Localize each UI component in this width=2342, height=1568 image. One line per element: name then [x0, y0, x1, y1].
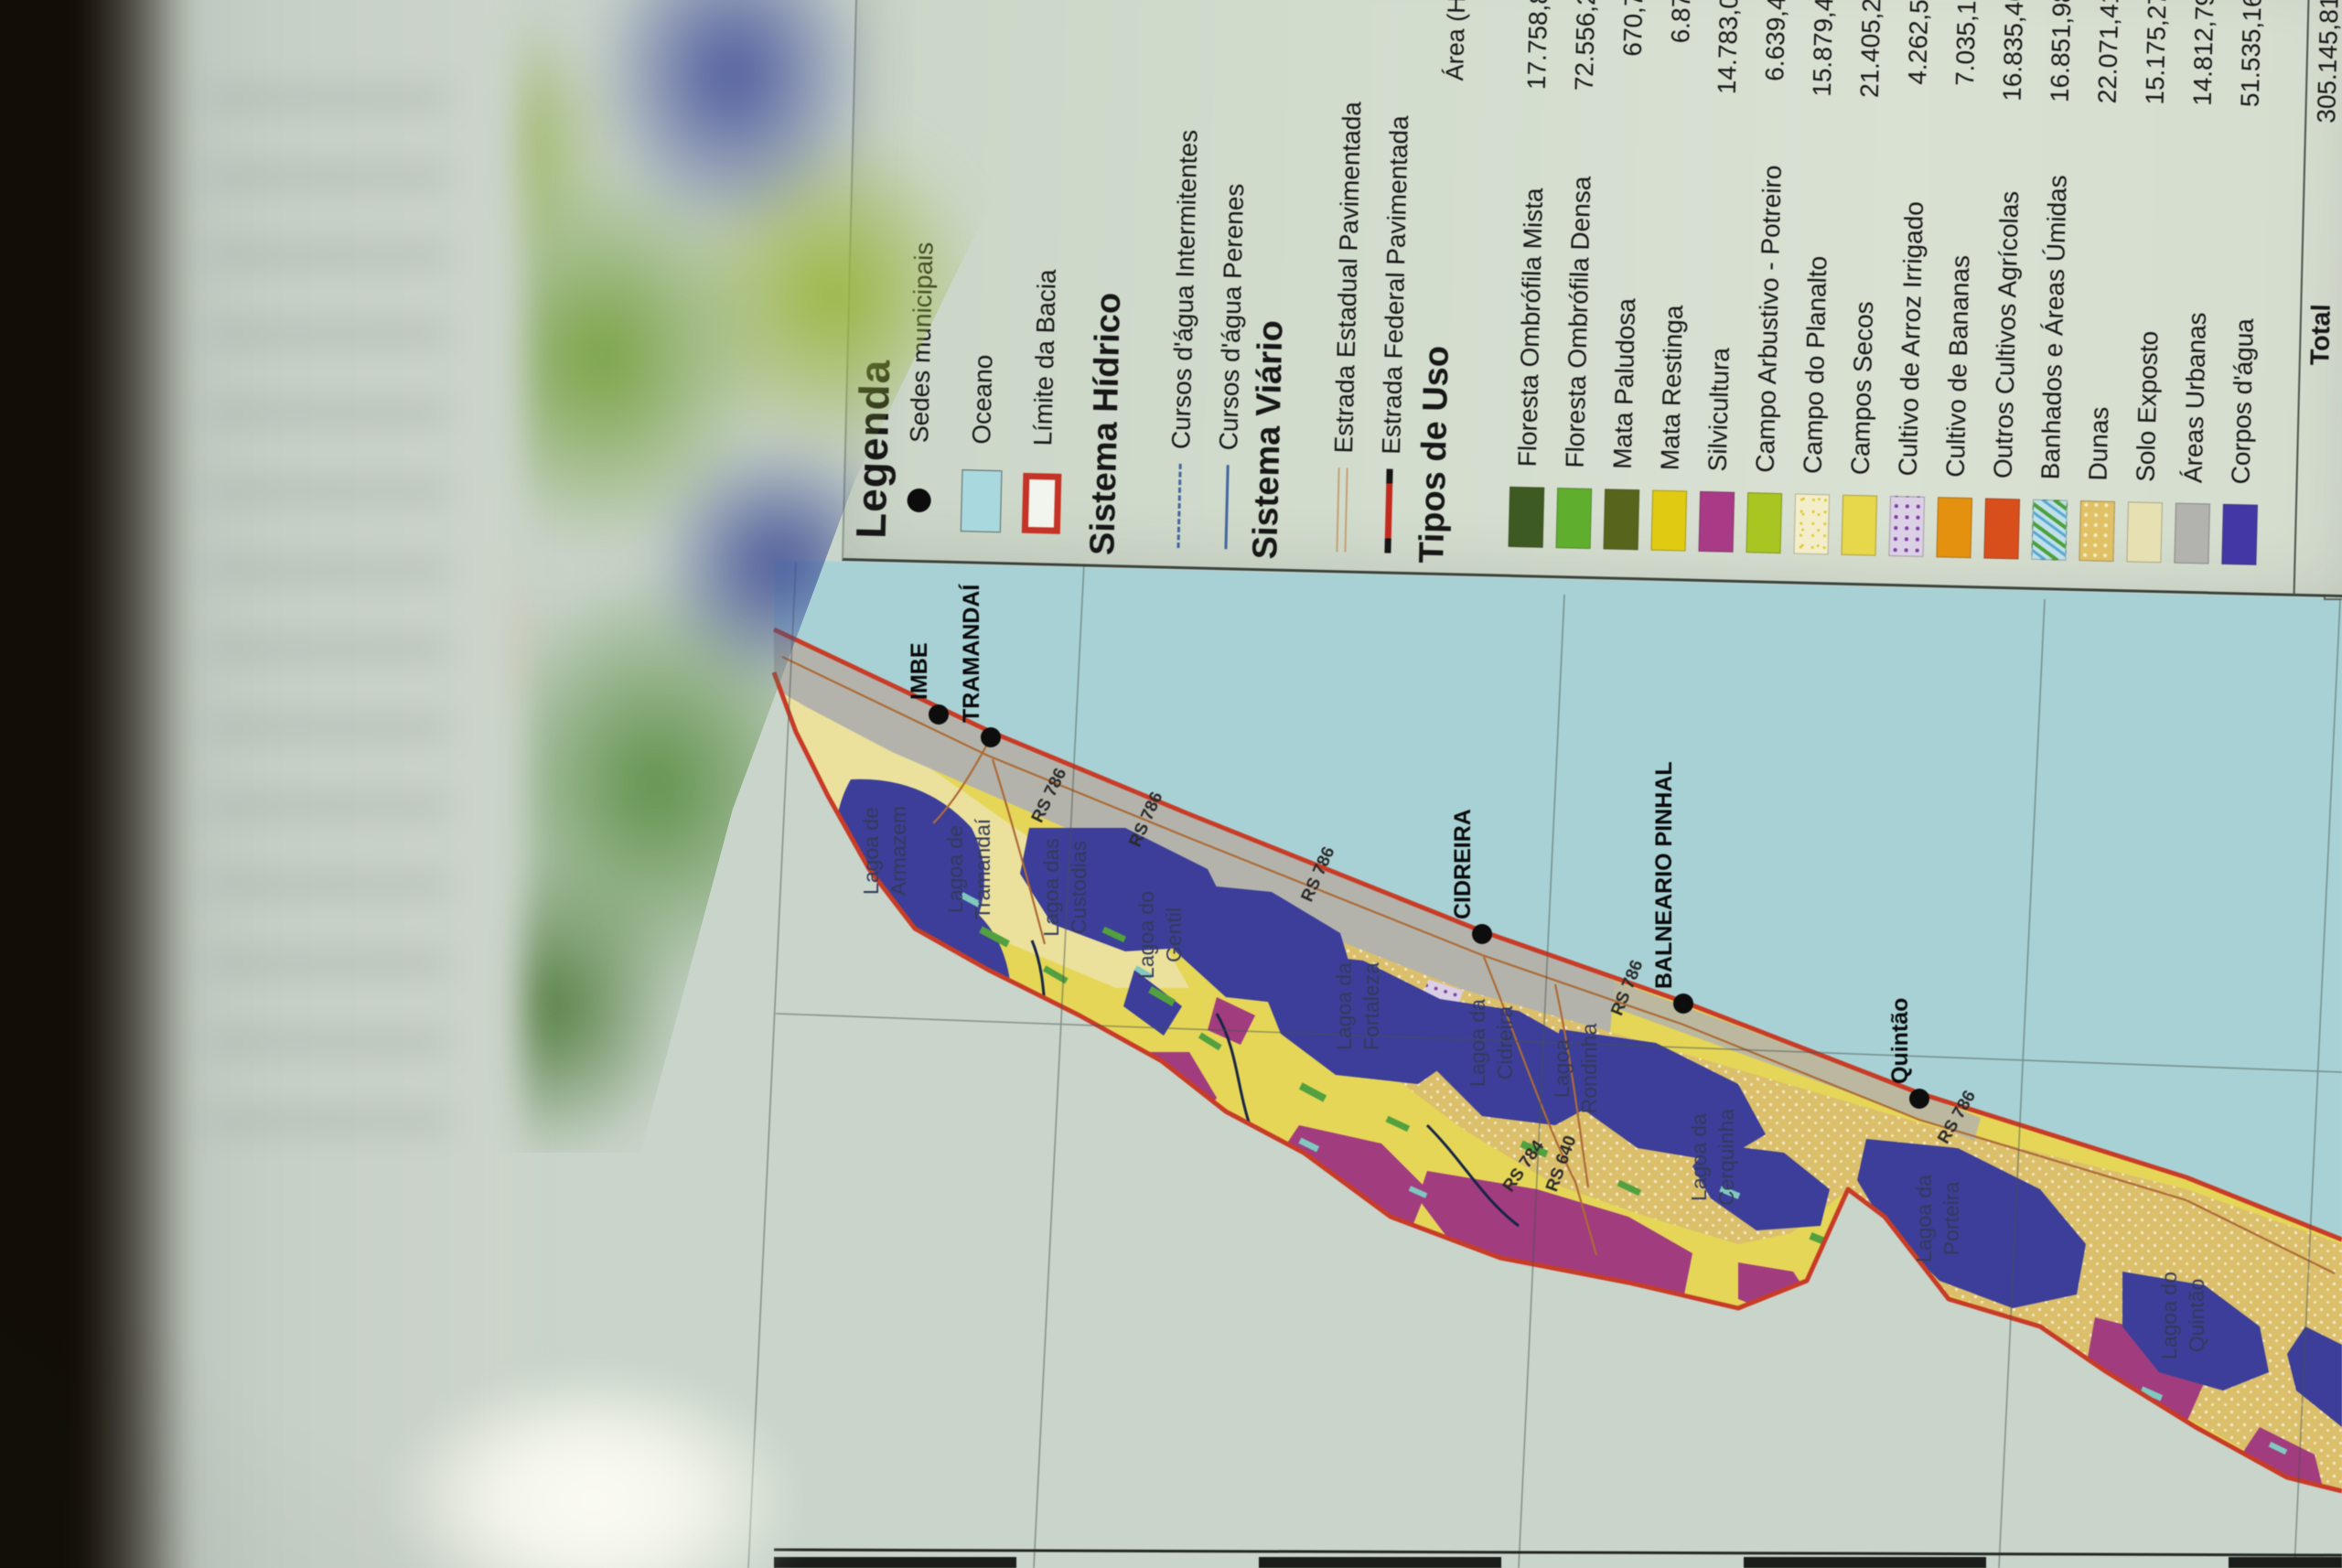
land-use-label: Cultivo de Arroz Irrigado: [1894, 201, 1929, 477]
city-label: IMBE: [907, 643, 932, 701]
lagoon-label: Rondinha: [1577, 1024, 1601, 1114]
city-dot: [1909, 1089, 1929, 1109]
land-use-area-value: 51.535,16: [2236, 0, 2268, 107]
dashed-blue-line-symbol: [1156, 461, 1202, 550]
lagoon-label: Lagoa da: [1687, 1113, 1711, 1201]
land-use-row: Solo Exposto15.175,27: [2123, 0, 2179, 590]
city-dot: [929, 704, 949, 725]
lagoon-label: Quintão: [2185, 1279, 2208, 1353]
city-label: BALNEARIO PINHAL: [1651, 761, 1677, 989]
ocean-swatch-symbol: [957, 456, 1003, 545]
land-use-area-value: 17.758,81: [1522, 0, 1554, 90]
area-column-header: Área (HA): [1441, 0, 1472, 81]
lagoon-label: Armazem: [886, 806, 910, 896]
land-use-area-value: 670,77: [1618, 0, 1649, 57]
photographed-map-scene: IMBETRAMANDAÍCIDREIRABALNEARIO PINHALQui…: [0, 0, 2342, 1568]
legend-item-label: Cursos d'água Intermitentes: [1166, 129, 1204, 449]
land-use-row: Floresta Ombrófila Densa72.556,21: [1552, 0, 1608, 576]
land-use-swatch: [1604, 489, 1640, 550]
land-use-label: Floresta Ombrófila Densa: [1561, 176, 1597, 468]
land-use-label: Dunas: [2084, 406, 2115, 481]
lagoon-label: Cidreira: [1493, 1006, 1517, 1080]
ocean-swatch: [961, 469, 1003, 532]
land-use-area-value: 14.812,79: [2188, 0, 2220, 106]
land-use-swatch: [2031, 499, 2068, 561]
lagoon-label: Tramandaí: [971, 818, 994, 919]
land-use-area-value: 72.556,21: [1570, 0, 1602, 91]
land-use-label: Áreas Urbanas: [2179, 312, 2213, 483]
land-use-area-value: 22.071,41: [2093, 0, 2125, 104]
land-use-title: Tipos de Uso: [1413, 345, 1457, 564]
land-use-row: Áreas Urbanas14.812,79: [2171, 0, 2227, 592]
dashed-blue-line: [1176, 464, 1181, 548]
land-use-row: Cultivo de Arroz Irrigado4.262,59: [1885, 0, 1941, 585]
land-use-row: Campo do Planalto15.879,47: [1790, 0, 1846, 582]
total-label: Total: [2305, 304, 2337, 366]
land-use-swatch: [1556, 488, 1593, 549]
land-use-label: Campo do Planalto: [1799, 255, 1833, 474]
lagoon-label: Lagoa de: [859, 807, 883, 895]
city-dot: [1673, 993, 1693, 1014]
federal-road: [1384, 469, 1392, 553]
legend-section-title: Sistema Hídrico: [1083, 292, 1129, 555]
land-use-label: Floresta Ombrófila Mista: [1513, 188, 1549, 467]
land-use-total-row: Total 305.145,81: [2294, 0, 2342, 595]
legend-item-label: Oceano: [967, 354, 998, 445]
lagoon-label: Lagoa da: [1332, 962, 1356, 1050]
land-use-row: Corpos d'água51.535,16: [2218, 0, 2274, 593]
land-use-label: Silvicultura: [1703, 348, 1735, 472]
municipal-dot: [907, 489, 931, 513]
basin-outline: [1022, 473, 1062, 534]
land-use-row: Mata Restinga6.873: [1648, 0, 1703, 579]
lagoon-label: Lagoa das: [1039, 838, 1063, 936]
land-use-swatch: [1699, 491, 1735, 553]
land-use-area-value: 4.262,59: [1903, 0, 1935, 85]
land-use-row: Silvicultura14.783,01: [1695, 0, 1751, 580]
state-road: [1336, 467, 1348, 552]
land-use-label: Mata Restinga: [1656, 305, 1689, 470]
land-use-label: Banhados e Áreas Úmidas: [2036, 175, 2073, 480]
land-use-area-value: 16.851,98: [2046, 0, 2078, 102]
legend-item-label: Estrada Federal Pavimentada: [1377, 115, 1414, 455]
solid-blue-line-symbol: [1204, 463, 1250, 552]
land-use-swatch: [2079, 500, 2115, 562]
city-label: CIDREIRA: [1450, 809, 1476, 919]
land-use-area-value: 21.405,22: [1855, 0, 1887, 98]
city-label: TRAMANDAÍ: [958, 584, 984, 723]
lagoon-label: Custodias: [1067, 841, 1090, 934]
lagoon-label: Lagoa da: [1912, 1175, 1936, 1262]
solid-blue-line: [1224, 465, 1229, 549]
land-use-area-value: 16.835,46: [1998, 0, 2030, 102]
basin-outline-symbol: [1018, 458, 1064, 547]
land-use-swatch: [1983, 499, 2020, 560]
land-use-row: Floresta Ombrófila Mista17.758,81: [1505, 0, 1561, 575]
land-use-row: Dunas22.071,41: [2076, 0, 2132, 589]
dark-photo-edge: [0, 0, 192, 1568]
land-use-row: Campos Secos21.405,22: [1838, 0, 1894, 584]
lagoon-label: Porteira: [1939, 1182, 1963, 1256]
land-use-area-value: 6.639,49: [1760, 0, 1792, 81]
land-use-row: Mata Paludosa670,77: [1600, 0, 1656, 577]
state-road-symbol: [1319, 466, 1365, 554]
lagoon-label: Lagoa do: [1134, 891, 1158, 979]
land-use-swatch: [1936, 497, 1972, 558]
legend-section-title: Sistema Viário: [1246, 320, 1291, 560]
city-dot: [1472, 924, 1492, 944]
legend-item: Límite da Bacia: [1015, 0, 1081, 564]
land-use-label: Outros Cultivos Agrícolas: [1989, 190, 2025, 478]
land-use-swatch: [2126, 501, 2163, 563]
lagoon-label: Fortaleza: [1359, 962, 1383, 1050]
legend-item-label: Límite da Bacia: [1028, 269, 1062, 446]
land-use-area-value: 7.035,16: [1950, 0, 1982, 86]
legend-panel: Legenda Sedes municipaisOceanoLímite da …: [842, 0, 2342, 597]
land-use-row: Campo Arbustivo - Potreiro6.639,49: [1743, 0, 1799, 581]
land-use-swatch: [1793, 493, 1830, 554]
land-use-label: Corpos d'água: [2227, 318, 2260, 485]
city-dot: [981, 727, 1001, 747]
land-use-swatch: [1888, 496, 1925, 557]
land-use-label: Cultivo de Bananas: [1941, 255, 1976, 478]
land-use-swatch: [1841, 495, 1877, 556]
legend-item-label: Estrada Estadual Pavimentada: [1329, 102, 1367, 454]
land-use-row: Banhados e Áreas Úmidas16.851,98: [2028, 0, 2084, 588]
land-use-swatch: [1651, 490, 1688, 552]
land-use-swatch: [1509, 487, 1545, 548]
federal-road-symbol: [1367, 467, 1413, 555]
land-use-area-value: 15.175,27: [2141, 0, 2173, 105]
land-use-swatch: [2174, 503, 2210, 564]
land-use-swatch: [2221, 504, 2258, 565]
legend-item-label: Cursos d'água Perenes: [1214, 183, 1250, 450]
municipal-dot-symbol: [895, 455, 940, 543]
lagoon-label: Lagoa do: [2157, 1272, 2181, 1359]
lagoon-label: Lagoa da: [1466, 999, 1489, 1087]
land-use-area-value: 6.873: [1666, 0, 1697, 44]
land-use-row: Outros Cultivos Agrícolas16.835,46: [1981, 0, 2036, 586]
lagoon-label: Gentil: [1162, 908, 1186, 962]
land-use-row: Cultivo de Bananas7.035,16: [1933, 0, 1989, 585]
lagoon-label: Lagoa: [1550, 1039, 1574, 1098]
land-use-swatch: [1746, 492, 1783, 553]
city-label: Quintão: [1887, 998, 1913, 1084]
lagoon-label: Cerquinha: [1714, 1109, 1738, 1206]
land-use-area-value: 15.879,47: [1808, 0, 1840, 97]
land-use-label: Campos Secos: [1846, 301, 1880, 476]
land-use-label: Mata Paludosa: [1608, 298, 1642, 470]
land-use-area-value: 14.783,01: [1713, 0, 1745, 94]
land-use-label: Solo Exposto: [2132, 330, 2165, 482]
total-value: 305.145,81: [2312, 0, 2342, 124]
light-reflection: [384, 1363, 805, 1568]
lagoon-label: Lagoa de: [943, 825, 967, 913]
land-use-label: Campo Arbustivo - Potreiro: [1751, 165, 1788, 473]
